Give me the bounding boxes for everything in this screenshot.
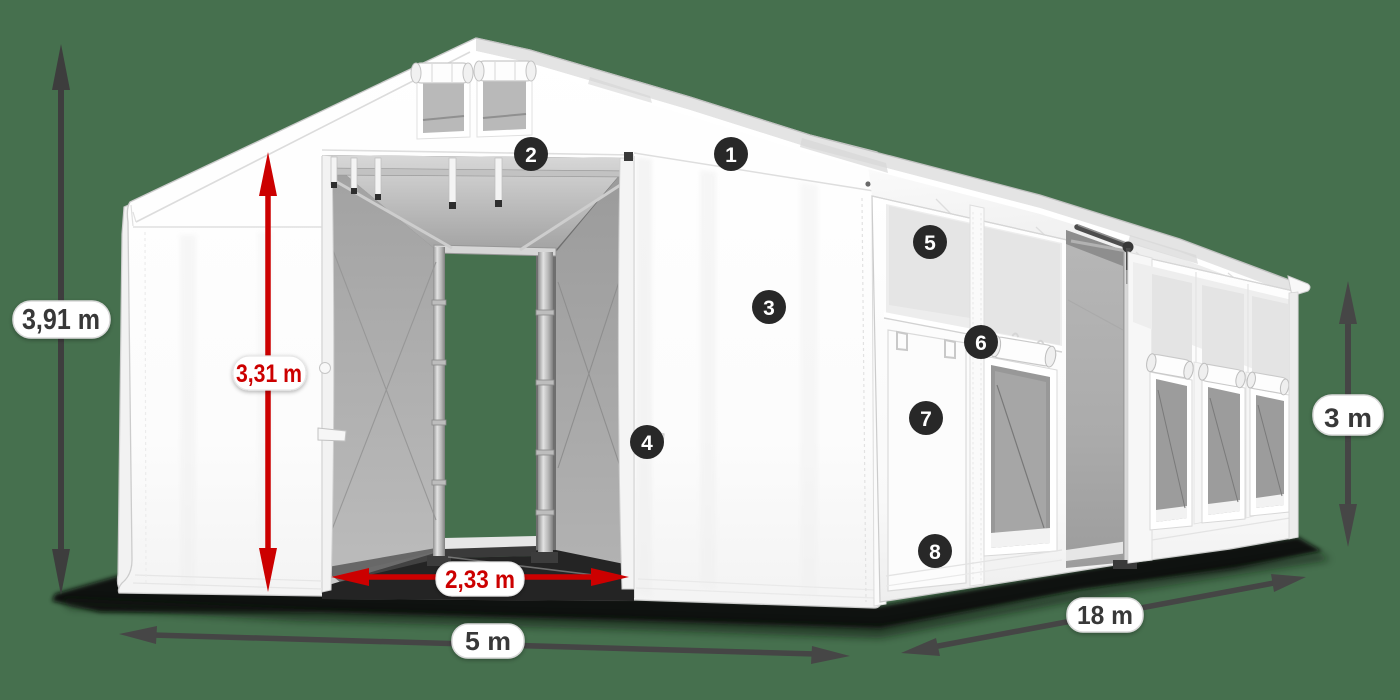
svg-text:3,91 m: 3,91 m bbox=[22, 304, 100, 336]
svg-text:4: 4 bbox=[641, 432, 653, 455]
svg-text:3 m: 3 m bbox=[1324, 403, 1372, 433]
svg-text:3: 3 bbox=[763, 297, 775, 320]
svg-text:5 m: 5 m bbox=[465, 626, 511, 656]
svg-text:18 m: 18 m bbox=[1077, 600, 1133, 630]
svg-text:7: 7 bbox=[920, 408, 932, 431]
svg-text:1: 1 bbox=[725, 144, 737, 167]
svg-text:3,31 m: 3,31 m bbox=[236, 360, 302, 388]
svg-text:6: 6 bbox=[975, 332, 987, 355]
svg-text:2: 2 bbox=[525, 144, 537, 167]
svg-text:8: 8 bbox=[929, 541, 941, 564]
svg-text:5: 5 bbox=[924, 232, 936, 255]
svg-text:2,33 m: 2,33 m bbox=[445, 566, 515, 594]
